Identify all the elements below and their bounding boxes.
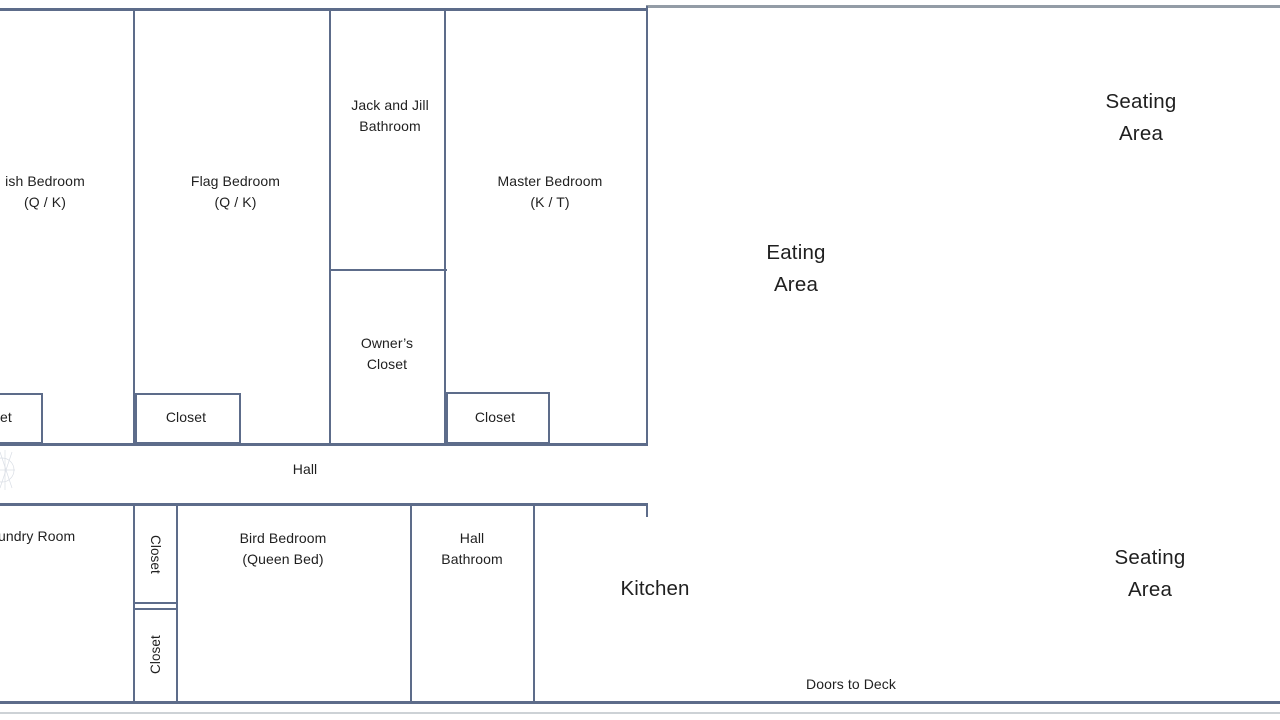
wall-kitchen-corner-tick [646, 503, 648, 517]
wall-top-great-room [646, 5, 1280, 8]
wall-hall-bottom [0, 503, 648, 506]
wall-hall-top [0, 443, 648, 446]
wall-closet-column-divider-a [134, 602, 178, 604]
fish-bedroom-label: ish Bedroom (Q / K) [0, 171, 106, 213]
seating-area-top-label: Seating Area [1066, 86, 1216, 150]
eating-area-label: Eating Area [721, 237, 871, 301]
wall-bathroom-owners-divider [329, 269, 447, 271]
wall-bathroom-master [444, 9, 446, 444]
wall-hallbath-kitchen [533, 505, 535, 702]
wall-top-bedrooms [0, 8, 648, 11]
cut-closet-label: et [0, 407, 30, 428]
wall-flag-bathroom [329, 9, 331, 444]
wall-master-great-room [646, 6, 648, 444]
laundry-room-label: undry Room [0, 526, 138, 547]
wall-bottom-exterior [0, 701, 1280, 704]
master-bedroom-label: Master Bedroom (K / T) [450, 171, 650, 213]
bird-bedroom-label: Bird Bedroom (Queen Bed) [183, 528, 383, 570]
flag-bedroom-label: Flag Bedroom (Q / K) [136, 171, 335, 213]
kitchen-label: Kitchen [580, 574, 730, 604]
seating-area-bottom-label: Seating Area [1075, 542, 1225, 606]
owners-closet-label: Owner’s Closet [332, 333, 442, 375]
hall-bathroom-label: Hall Bathroom [412, 528, 532, 570]
deck-edge-line [0, 712, 1280, 714]
lower-closet-vertical-label: Closet [134, 610, 177, 700]
wall-fish-flag [133, 9, 135, 444]
jack-and-jill-bathroom-label: Jack and Jill Bathroom [332, 95, 448, 137]
doors-to-deck-label: Doors to Deck [781, 674, 921, 695]
floor-plan: ish Bedroom (Q / K) Flag Bedroom (Q / K)… [0, 0, 1280, 720]
compass-rose-fragment [0, 450, 24, 490]
master-closet-label: Closet [445, 407, 545, 428]
flag-closet-label: Closet [136, 407, 236, 428]
upper-closet-vertical-label: Closet [134, 508, 177, 600]
hall-label: Hall [255, 459, 355, 480]
